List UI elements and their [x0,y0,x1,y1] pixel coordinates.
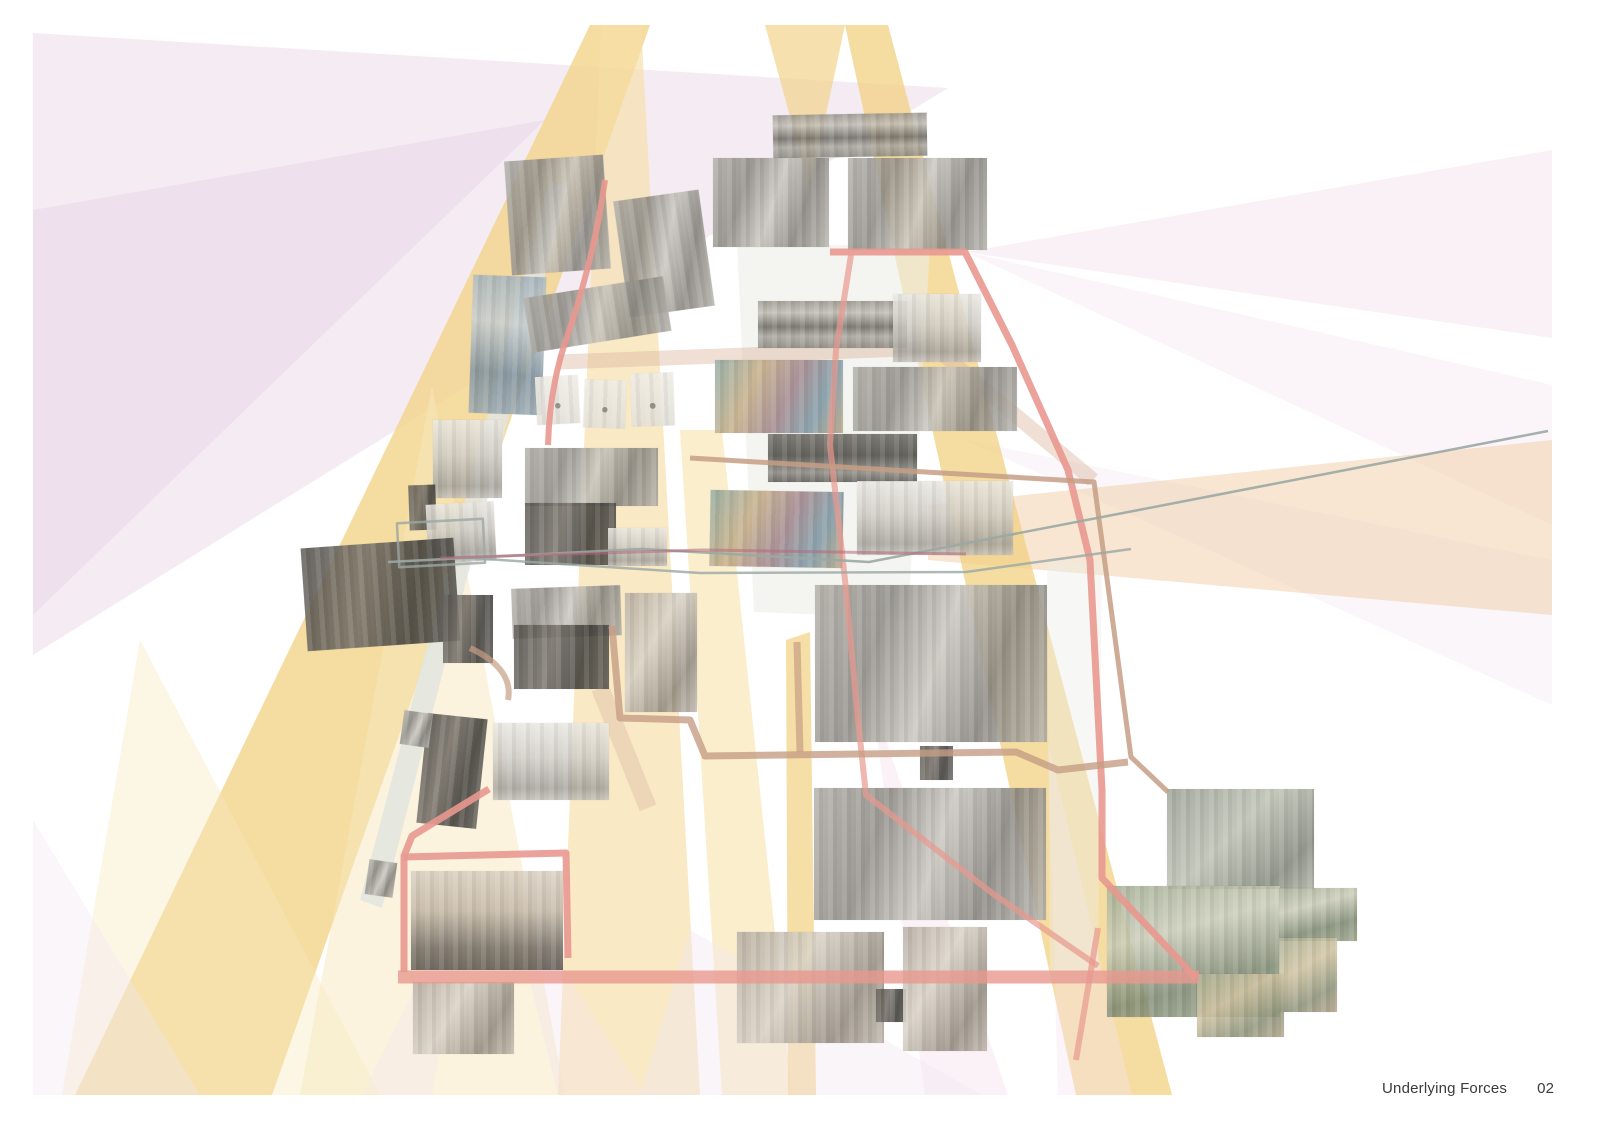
salmon-path-center [830,255,1098,966]
tan-path-inner [612,626,1128,770]
collage-canvas: Underlying Forces 02 [0,0,1600,1131]
salmon-path-right [830,252,1196,978]
tan-stub-curve [470,648,509,700]
salmon-path-left [548,180,605,445]
page-title: Underlying Forces [1382,1080,1507,1097]
tan-stub-vertical [797,642,800,752]
page-number: 02 [1537,1080,1554,1097]
gray-line-long [388,431,1548,562]
maroon-line [440,550,966,558]
salmon-loop-cinema [404,789,489,972]
salmon-frame-cinema [404,853,568,958]
salmon-tail [1076,928,1098,1060]
connector-lines [0,0,1600,1131]
connector-group [388,180,1548,1060]
page-footer: Underlying Forces 02 [1382,1080,1554,1097]
